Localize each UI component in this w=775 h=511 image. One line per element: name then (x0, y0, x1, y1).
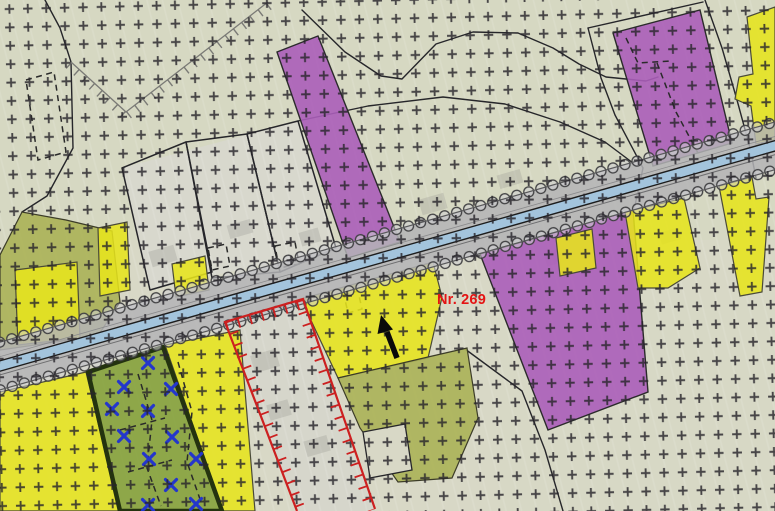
zoning-map-viewport[interactable]: Nr. 269 (0, 0, 775, 511)
parcel-number-label: Nr. 269 (437, 292, 486, 308)
zoning-map[interactable]: Nr. 269 (0, 0, 775, 511)
plus-grid-overlay (0, 0, 775, 511)
